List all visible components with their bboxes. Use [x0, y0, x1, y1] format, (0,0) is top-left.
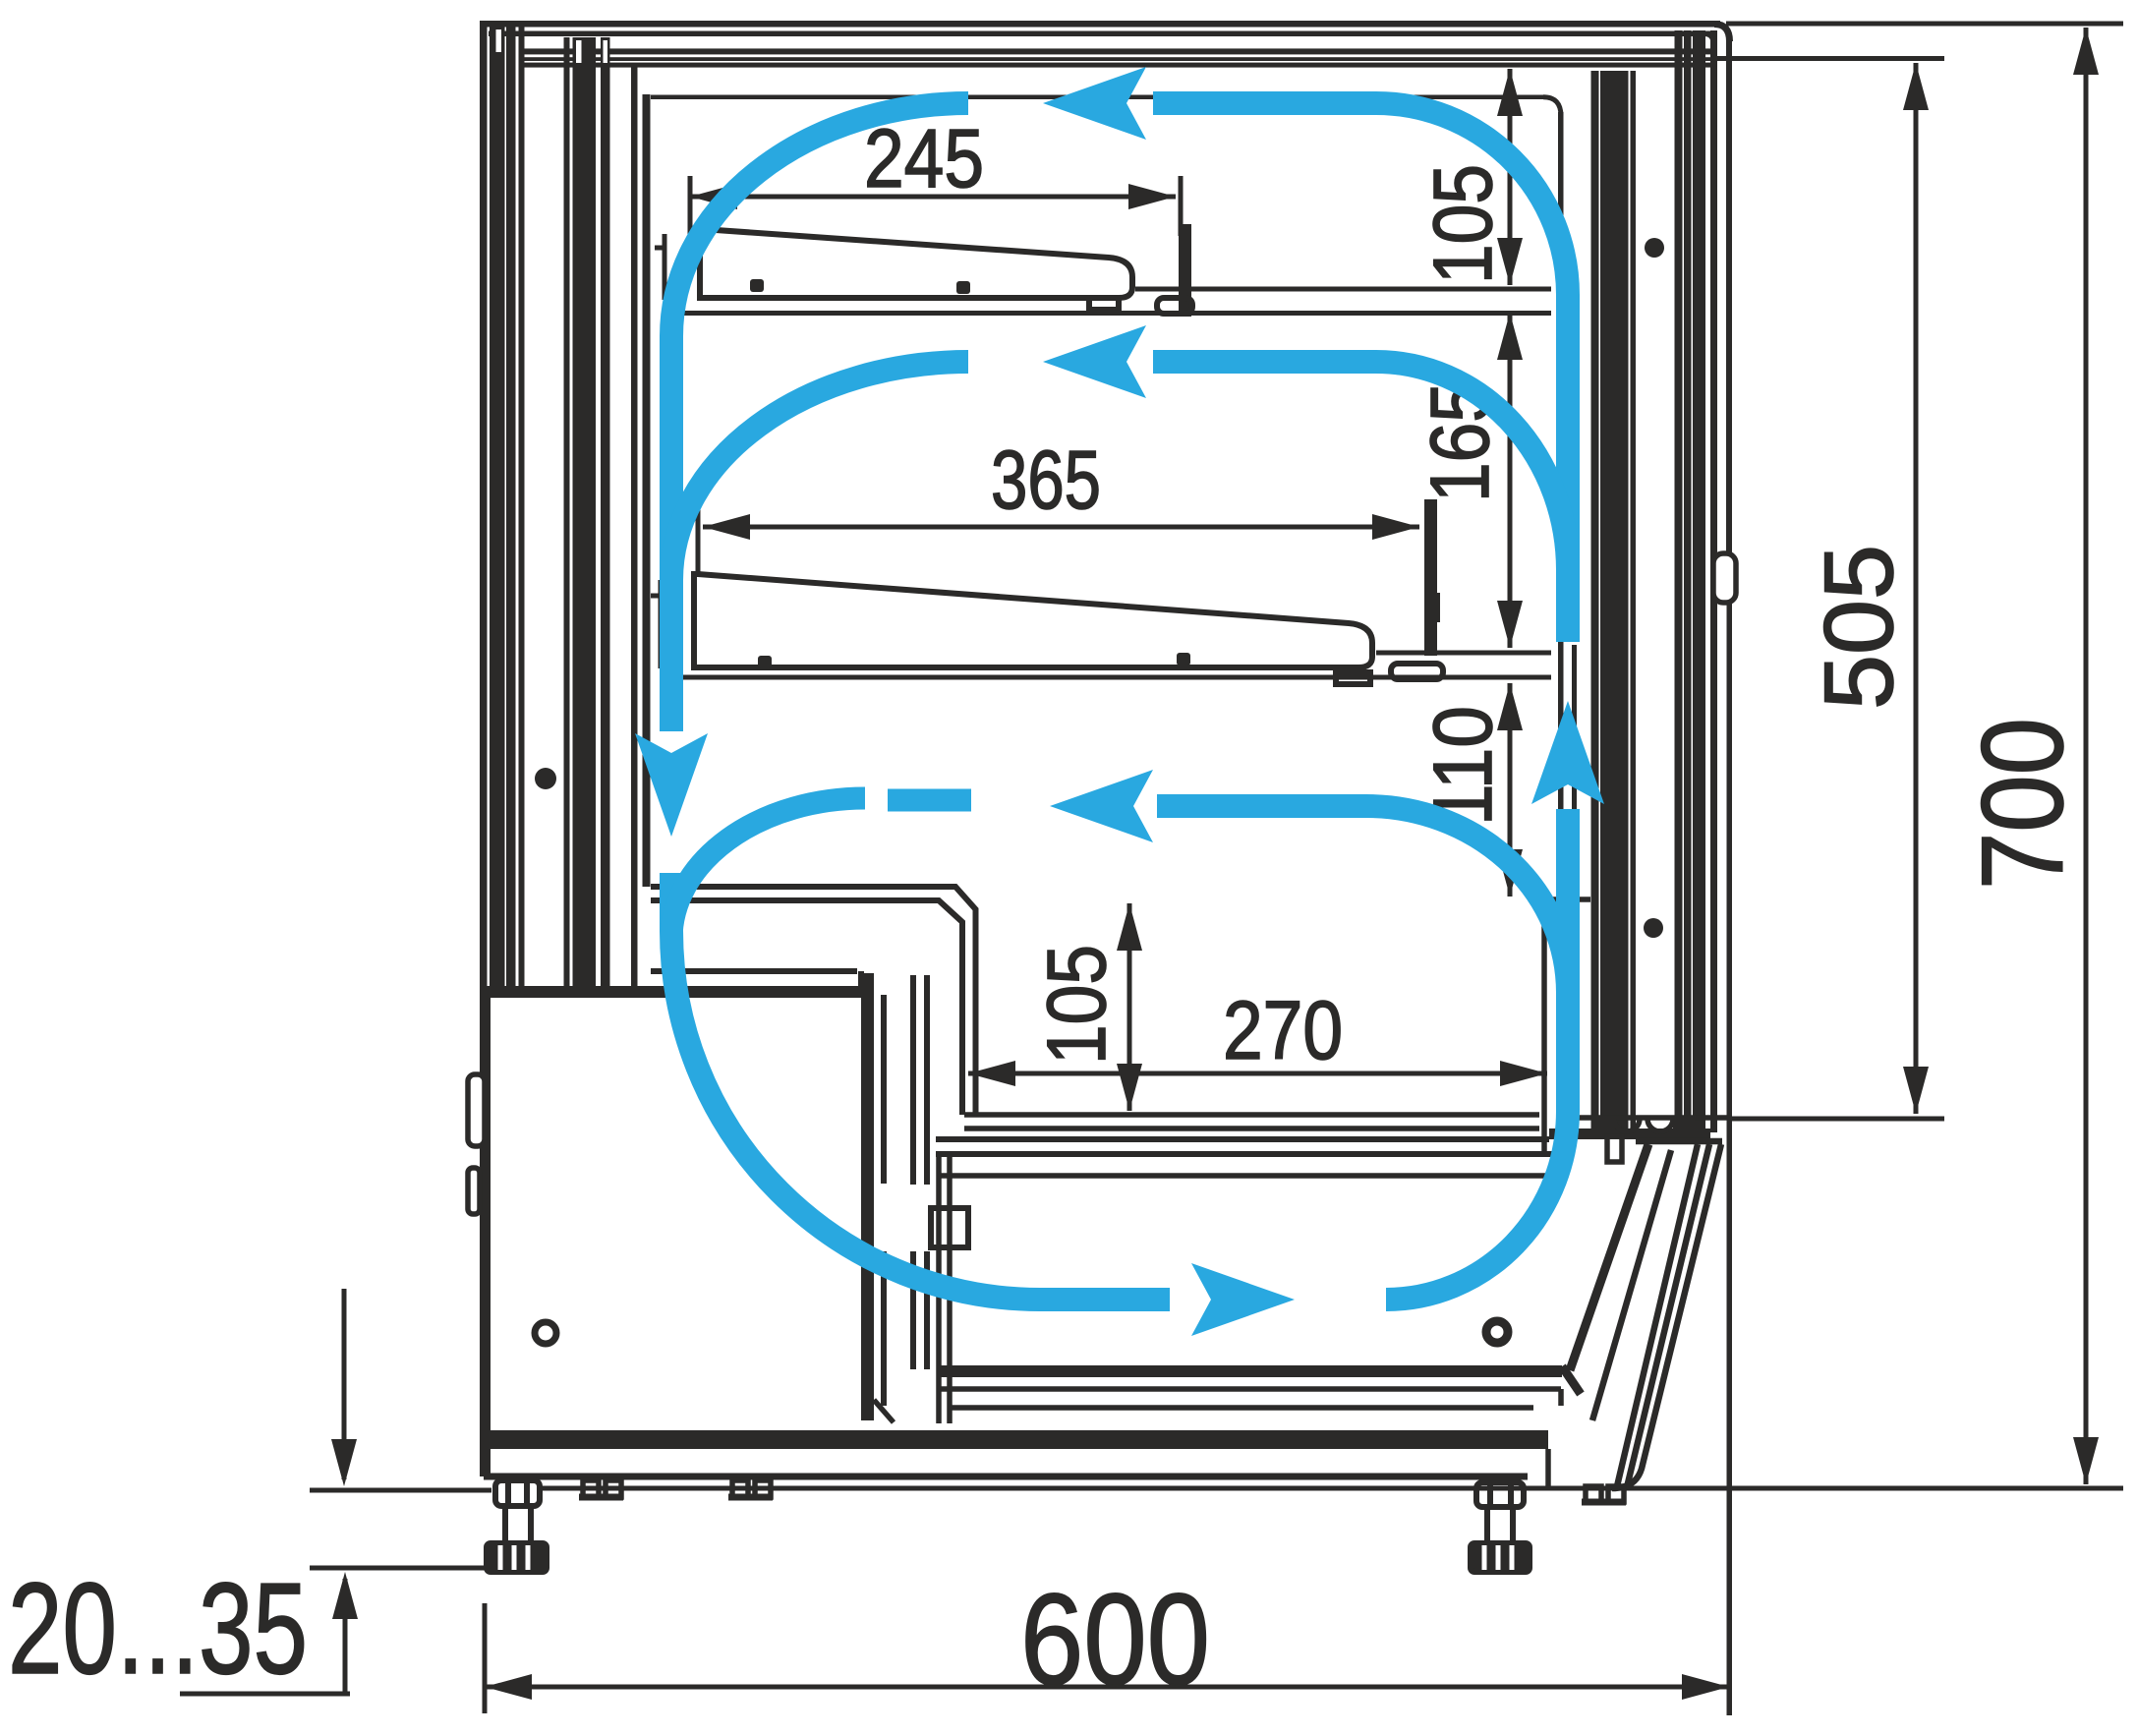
svg-text:600: 600: [1020, 1567, 1210, 1711]
svg-text:365: 365: [991, 434, 1101, 526]
svg-text:20...35: 20...35: [8, 1556, 308, 1701]
svg-text:505: 505: [1804, 545, 1913, 710]
svg-text:105: 105: [1030, 945, 1123, 1065]
svg-text:700: 700: [1958, 718, 2088, 890]
svg-text:245: 245: [864, 112, 984, 204]
svg-text:270: 270: [1223, 984, 1343, 1076]
svg-text:105: 105: [1416, 164, 1509, 284]
